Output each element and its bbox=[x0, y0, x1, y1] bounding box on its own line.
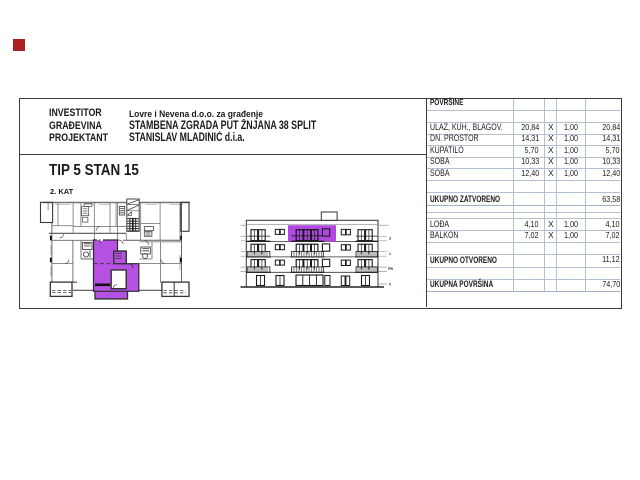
svg-text:1: 1 bbox=[389, 252, 391, 256]
svg-text:0: 0 bbox=[389, 282, 391, 286]
svg-text:PR: PR bbox=[388, 267, 393, 271]
svg-text:3: 3 bbox=[389, 237, 391, 241]
